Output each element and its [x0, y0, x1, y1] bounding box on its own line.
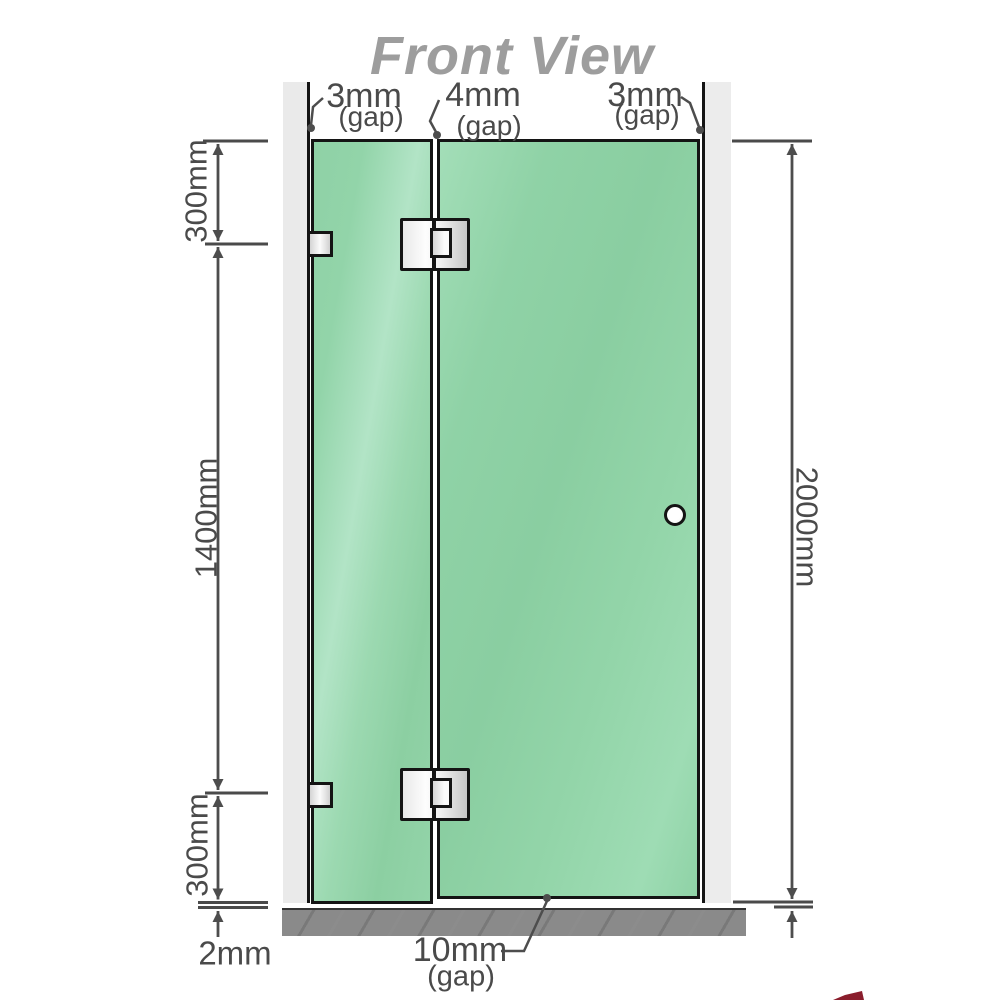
shower-base	[282, 908, 746, 936]
left-wall	[283, 82, 310, 903]
label-top-gap-right-qualifier: (gap)	[614, 101, 679, 129]
label-top-gap-middle: 4mm	[445, 78, 521, 112]
label-total-height: 2000mm	[792, 467, 823, 588]
shower-screen-diagram: Front View	[0, 0, 1000, 1000]
label-door-gap-qualifier: (gap)	[427, 963, 495, 992]
door-panel-glass	[437, 139, 700, 899]
wall-bracket-bottom	[307, 782, 333, 808]
door-knob	[664, 504, 686, 526]
label-height-bottom-segment: 300mm	[182, 793, 213, 896]
label-top-gap-middle-qualifier: (gap)	[456, 112, 521, 140]
right-wall	[702, 82, 731, 903]
label-height-middle-segment: 1400mm	[191, 458, 222, 579]
label-height-top-segment: 300mm	[181, 139, 212, 242]
label-floor-clearance: 2mm	[198, 937, 271, 970]
logo-fragment	[833, 991, 864, 1000]
hinge-knuckle	[430, 228, 452, 258]
hinge-knuckle	[430, 778, 452, 808]
hinge-bottom	[400, 768, 470, 821]
hinge-top	[400, 218, 470, 271]
wall-bracket-top	[307, 231, 333, 257]
label-top-gap-left-qualifier: (gap)	[338, 103, 403, 131]
